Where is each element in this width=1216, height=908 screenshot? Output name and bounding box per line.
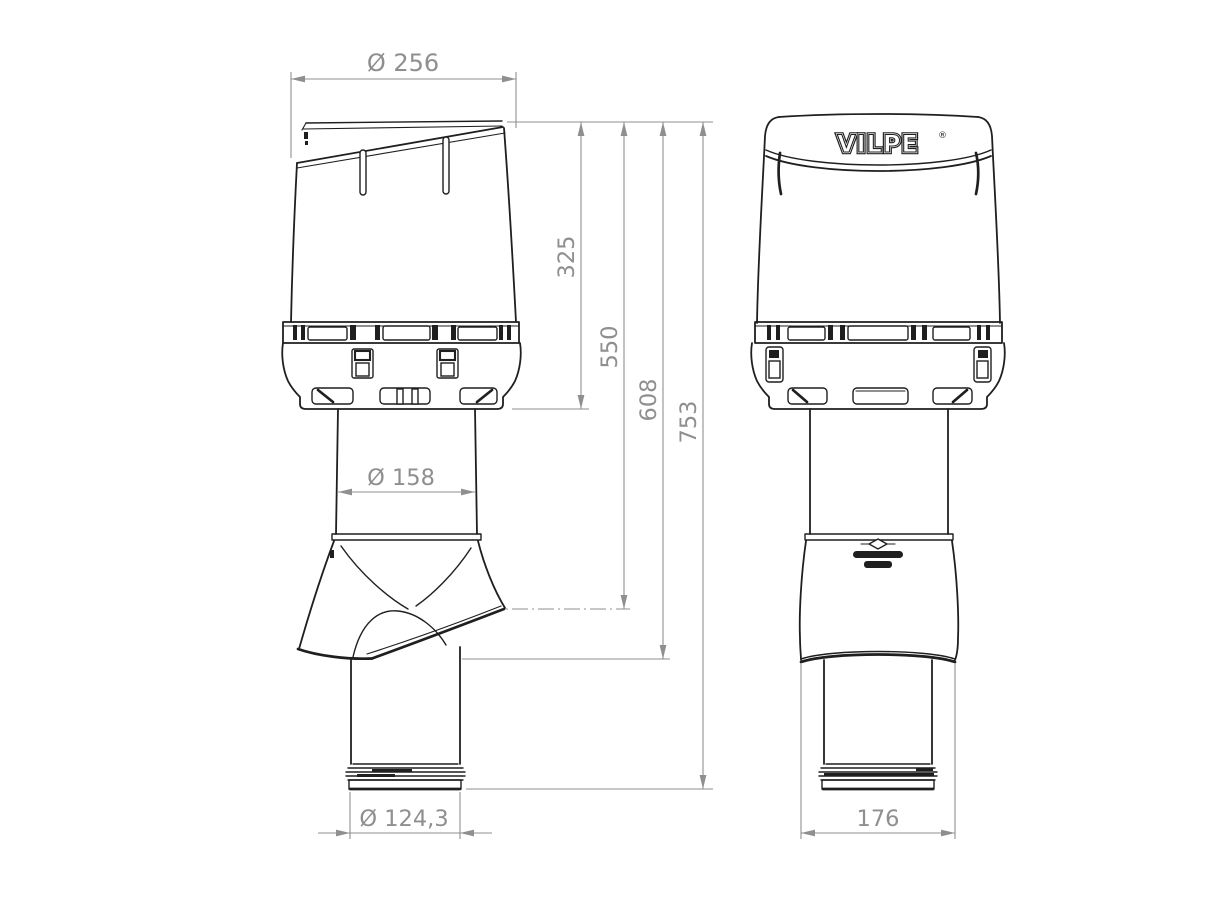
side-view: [282, 121, 521, 789]
cap-hood-side: [291, 121, 516, 322]
roof-flashing-front: [800, 539, 959, 662]
hood-slant-inner-edge: [297, 133, 505, 168]
arrowhead: [700, 122, 707, 136]
flashing-crease: [341, 546, 408, 609]
louver-post: [499, 325, 503, 340]
louver-post: [350, 325, 356, 340]
hood-brim-line-lower: [766, 156, 991, 171]
front-view: VILPE VILPE VILPE ®: [751, 114, 1005, 789]
arrowhead: [700, 775, 707, 789]
dim-total-height: 753: [466, 122, 713, 789]
flashing-left-edge: [800, 541, 806, 660]
dim-label-height-to-flashing-mid: 550: [597, 326, 623, 369]
louver-post: [375, 325, 380, 340]
flashing-right-edge: [952, 541, 958, 660]
hood-left-edge: [291, 163, 297, 322]
flashing-brand-mark: [853, 539, 903, 568]
base-vent: [853, 388, 908, 404]
louver-post: [776, 325, 780, 340]
arrowhead: [660, 645, 667, 659]
side-clip-lock: [769, 350, 779, 358]
upper-pipe-front: [805, 409, 953, 540]
pipe-shade-mark: [916, 768, 933, 771]
side-clip-inner: [769, 361, 780, 378]
registered-mark: ®: [938, 131, 947, 141]
vilpe-logo: VILPE VILPE VILPE ®: [837, 130, 947, 158]
base-vent: [380, 388, 430, 404]
hood-clip-mark: [305, 141, 308, 145]
arrowhead: [621, 122, 628, 136]
lower-pipe-side: [346, 647, 465, 789]
arrowhead: [336, 830, 350, 837]
technical-drawing: VILPE VILPE VILPE ®: [0, 0, 1216, 908]
flashing-left-edge: [299, 541, 334, 649]
louver-opening: [933, 327, 970, 340]
clip-tab-inner: [356, 363, 369, 376]
louver-opening: [788, 327, 825, 340]
hood-lid-top-edge: [306, 121, 502, 123]
dimensions: Ø 256 325 550 608: [291, 49, 955, 839]
pipe-shade-mark: [824, 773, 934, 776]
side-clip-inner: [977, 361, 988, 378]
louver-post: [451, 325, 456, 340]
arrowhead: [502, 76, 516, 83]
flashing-mark: [330, 550, 334, 558]
arrowhead: [291, 76, 305, 83]
pipe-socket-joint: [332, 534, 481, 540]
hood-top-edge: [779, 114, 978, 117]
louver-band-side: [283, 322, 519, 343]
louver-post: [432, 325, 438, 340]
dim-upper-pipe-diameter: Ø 158: [338, 465, 475, 495]
flashing-arch: [353, 611, 446, 657]
louver-post: [507, 325, 511, 340]
cap-hood-front: VILPE VILPE VILPE ®: [757, 114, 1000, 323]
base-vent-divider: [397, 389, 403, 404]
vilpe-logo-core: VILPE: [837, 130, 919, 158]
lower-pipe-front: [819, 660, 937, 789]
hood-clip-mark: [304, 132, 308, 139]
louver-post: [840, 325, 845, 340]
dim-label-upper-pipe-diameter: Ø 158: [367, 465, 435, 491]
dim-cap-height: 325: [512, 122, 589, 409]
dim-label-cap-diameter: Ø 256: [367, 49, 439, 77]
arrowhead: [461, 489, 475, 496]
dim-label-height-to-flashing-bottom: 608: [636, 379, 662, 422]
arrowhead: [801, 830, 815, 837]
dim-lower-pipe-diameter: Ø 124,3: [318, 792, 492, 839]
dim-label-flashing-width: 176: [857, 806, 900, 832]
hood-corner-accent: [779, 153, 781, 194]
louver-post: [986, 325, 990, 340]
hood-lid-bottom-edge: [303, 126, 502, 129]
louver-opening: [848, 326, 908, 340]
dim-label-total-height: 753: [676, 401, 702, 444]
hood-corner-accent: [976, 153, 978, 194]
hood-slant-edge: [297, 127, 503, 163]
pipe-shade-mark: [372, 769, 412, 772]
arrowhead: [660, 122, 667, 136]
base-section-side: [282, 343, 521, 409]
base-vent-divider: [412, 389, 418, 404]
flashing-crease: [416, 548, 471, 606]
drawing-canvas: VILPE VILPE VILPE ®: [0, 0, 1216, 908]
hood-drain-slot: [443, 137, 449, 194]
hood-drain-slot: [360, 150, 366, 195]
flashing-right-edge: [478, 541, 505, 608]
dim-label-lower-pipe-diameter: Ø 124,3: [359, 806, 448, 832]
dim-cap-diameter: Ø 256: [291, 49, 516, 158]
louver-post: [828, 325, 833, 340]
louver-post: [293, 325, 297, 340]
side-clip-lock: [978, 350, 988, 358]
dim-label-cap-height: 325: [554, 236, 580, 279]
arrowhead: [460, 830, 474, 837]
hood-right-edge: [978, 117, 1000, 323]
base-section-front: [751, 343, 1005, 409]
upper-pipe-left-wall: [336, 409, 338, 534]
hood-left-edge: [757, 117, 779, 323]
louver-post: [977, 325, 981, 340]
clip-tab-inner: [441, 363, 454, 376]
louver-opening: [308, 327, 347, 340]
arrowhead: [578, 122, 585, 136]
louver-post: [767, 325, 771, 340]
brand-text-band: [853, 551, 903, 558]
louver-post: [301, 325, 305, 340]
louver-opening: [458, 327, 497, 340]
arrowhead: [578, 395, 585, 409]
dim-height-to-flashing-mid: 550: [506, 122, 630, 609]
louver-band-front: [755, 322, 1002, 343]
brand-text-band: [864, 561, 892, 568]
pipe-shade-mark: [357, 774, 395, 777]
louver-post: [922, 325, 927, 340]
arrowhead: [338, 489, 352, 496]
clip-tab-lock: [440, 351, 455, 360]
clip-tab-lock: [355, 351, 370, 360]
louver-opening: [383, 326, 430, 340]
flashing-bottom-edge: [298, 649, 372, 659]
hood-right-edge: [504, 128, 516, 322]
upper-pipe-right-wall: [475, 409, 477, 534]
louver-post: [911, 325, 916, 340]
roof-flashing-side: [298, 541, 505, 659]
arrowhead: [621, 595, 628, 609]
arrowhead: [941, 830, 955, 837]
pipe-bead-rings: [819, 764, 937, 780]
